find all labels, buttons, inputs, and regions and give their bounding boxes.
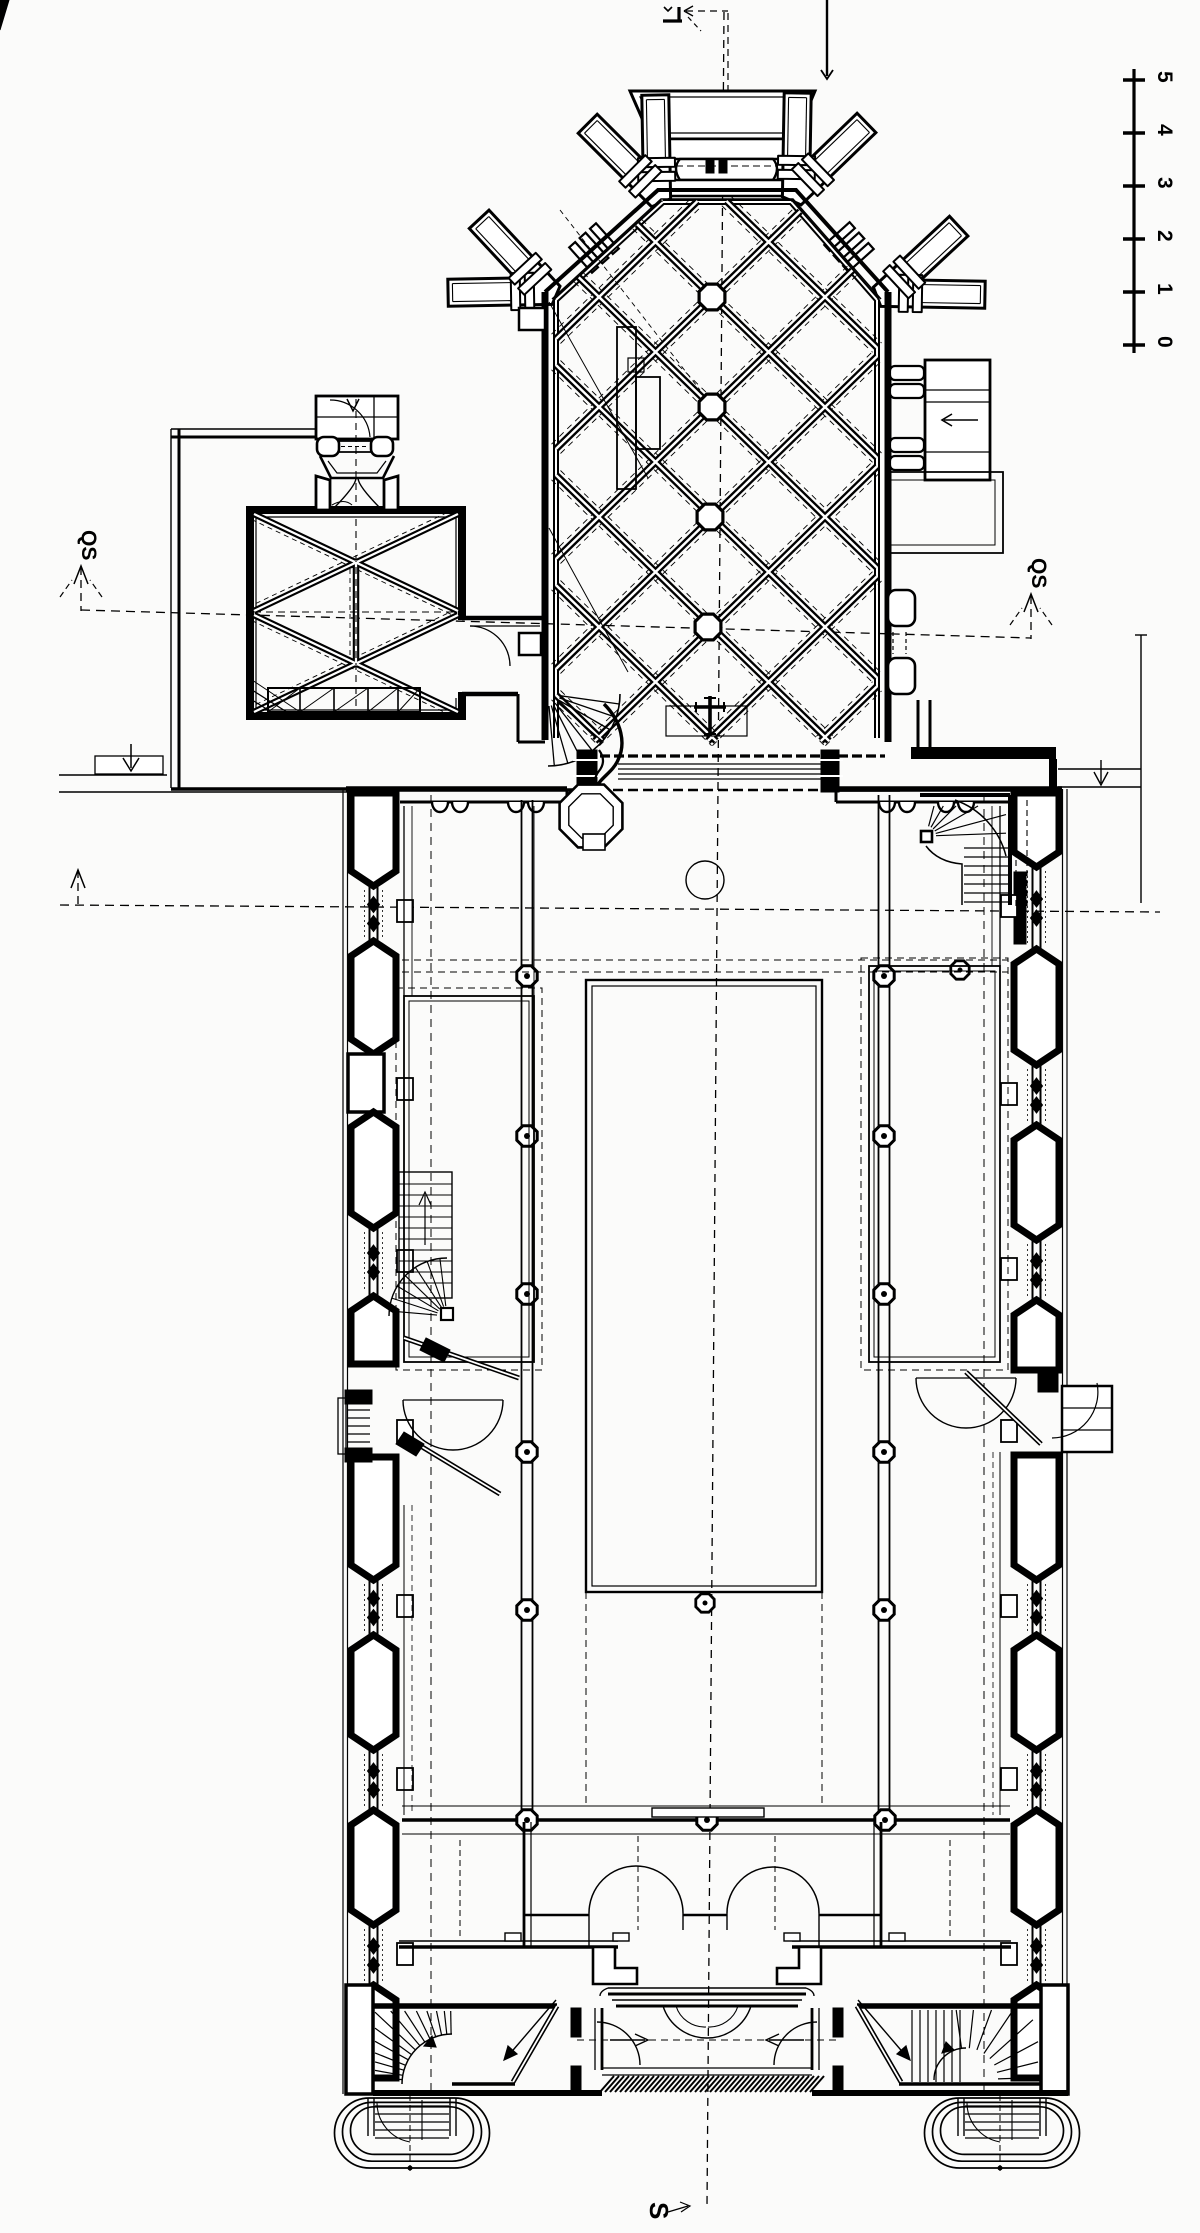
svg-text:2: 2 [1153,230,1176,242]
svg-text:3: 3 [1153,177,1176,189]
svg-text:QS: QS [1027,558,1050,588]
svg-text:5: 5 [1153,71,1176,83]
svg-text:4: 4 [1153,124,1176,136]
svg-text:S: S [644,2202,674,2219]
svg-text:0: 0 [1153,336,1176,348]
svg-text:QS: QS [77,530,100,560]
svg-text:1: 1 [1153,283,1176,295]
